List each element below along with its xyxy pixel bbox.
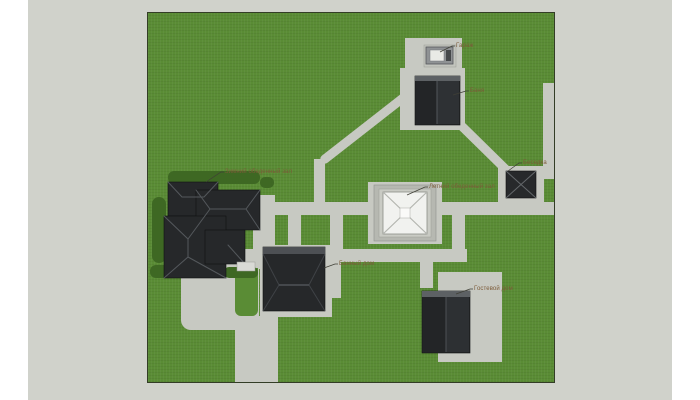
path-pavilion-pad xyxy=(368,182,442,244)
lawn-finger xyxy=(235,268,258,316)
label-garage: Гараж xyxy=(456,43,473,49)
label-sauna: Баня xyxy=(470,88,484,94)
label-winter-dining: Зимний обеденный зал xyxy=(225,169,292,175)
site-plan: Гараж Баня Беседка Летний обеденный зал … xyxy=(147,12,555,383)
label-gazebo: Беседка xyxy=(523,160,547,166)
label-summer-dining: Летний обеденный зал xyxy=(429,184,495,190)
path-driveway-column xyxy=(235,316,278,382)
path-bathhouse-pad xyxy=(260,245,332,317)
render-canvas: Гараж Баня Беседка Летний обеденный зал … xyxy=(28,0,672,400)
path-vertical-guest xyxy=(420,260,433,288)
path-gazebo-pad xyxy=(498,166,544,202)
label-bath-house: Банный дом xyxy=(339,261,374,267)
label-guest-house: Гостевой дом xyxy=(474,286,513,292)
path-diagonal-connector xyxy=(314,159,325,205)
path-vertical-3 xyxy=(452,202,465,262)
